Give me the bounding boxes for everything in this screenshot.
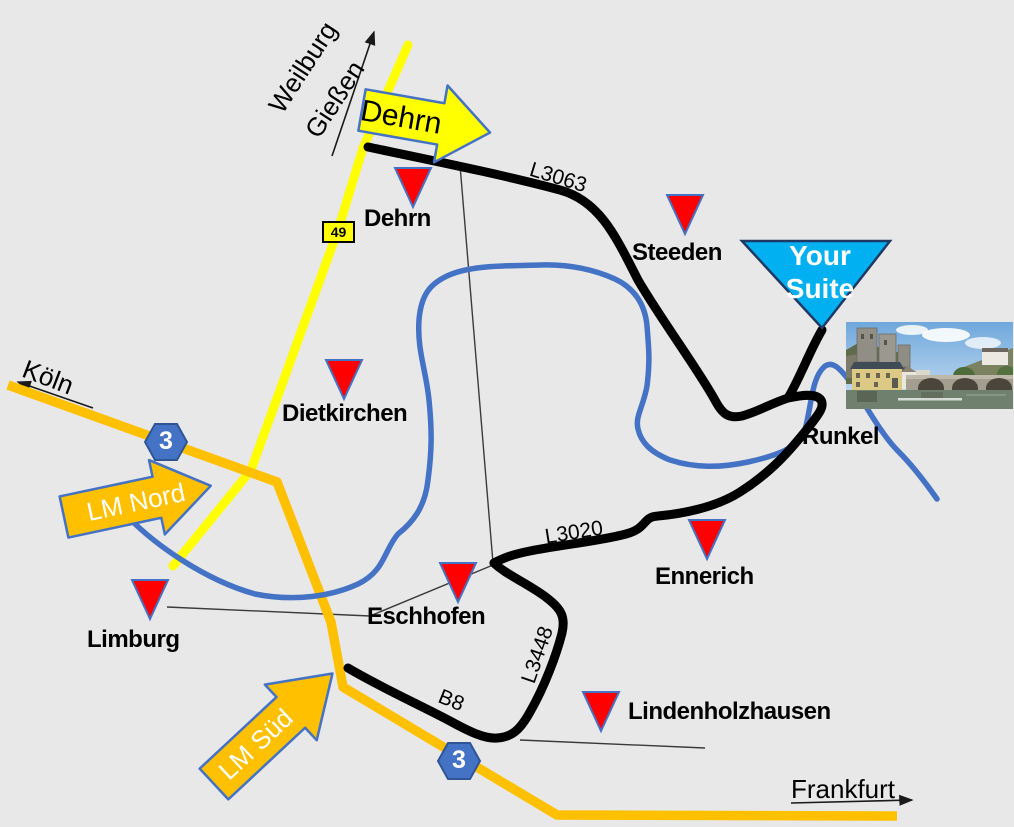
minor-road-lindenholzhausen bbox=[520, 740, 705, 748]
town-marker-steeden bbox=[667, 195, 703, 234]
town-label-lindenholzhausen: Lindenholzhausen bbox=[628, 698, 831, 726]
b49-badge: 49 bbox=[322, 221, 355, 243]
town-marker-dehrn bbox=[395, 168, 431, 207]
destination-label-line1: Your bbox=[765, 240, 875, 272]
town-label-runkel: Runkel bbox=[802, 423, 879, 451]
a3-badge-south-number: 3 bbox=[442, 743, 476, 777]
map-canvas: Dehrn Steeden Dietkirchen Limburg Eschho… bbox=[0, 0, 1014, 827]
town-marker-lindenholzhausen bbox=[583, 692, 619, 731]
town-label-eschhofen: Eschhofen bbox=[367, 603, 485, 631]
minor-road-dehrn-eschhofen bbox=[460, 165, 493, 563]
town-label-steeden: Steeden bbox=[632, 239, 722, 267]
town-label-limburg: Limburg bbox=[87, 626, 180, 654]
town-marker-limburg bbox=[132, 580, 168, 619]
a3-badge-north-number: 3 bbox=[149, 424, 183, 458]
destination-label-line2: Suite bbox=[765, 273, 875, 305]
map-graphics bbox=[0, 0, 1014, 827]
road-to-suite bbox=[788, 330, 822, 398]
town-marker-dietkirchen bbox=[326, 360, 362, 399]
town-marker-eschhofen bbox=[440, 563, 476, 602]
town-label-dehrn: Dehrn bbox=[364, 205, 431, 233]
town-marker-ennerich bbox=[689, 520, 725, 559]
town-label-ennerich: Ennerich bbox=[655, 563, 754, 591]
town-label-dietkirchen: Dietkirchen bbox=[282, 400, 407, 428]
runkel-castle-photo bbox=[846, 322, 1014, 409]
sign-frankfurt: Frankfurt bbox=[791, 774, 895, 805]
